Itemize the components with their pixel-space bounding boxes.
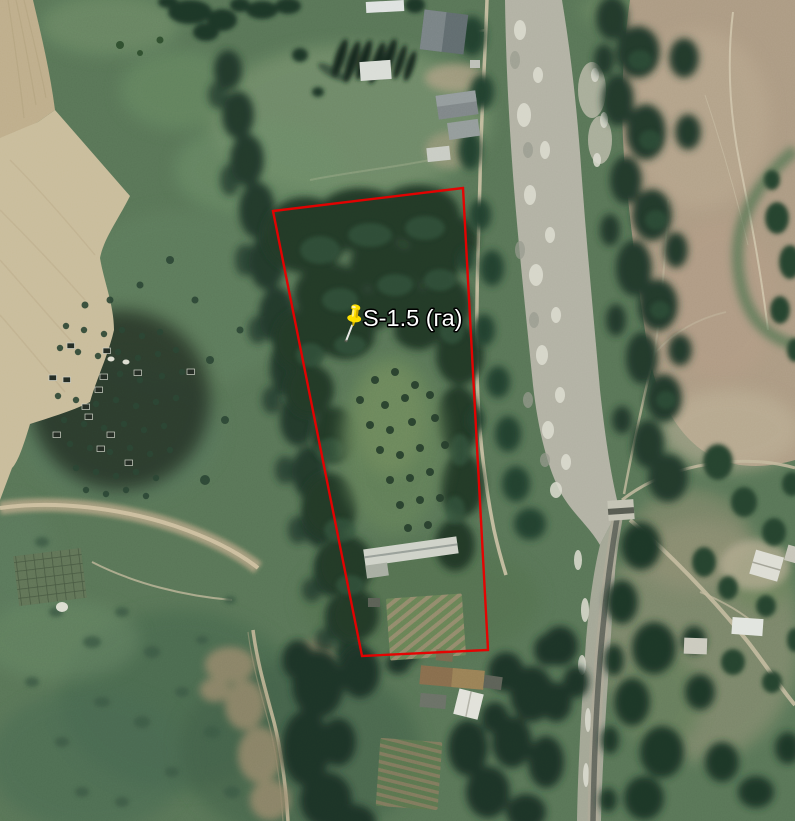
map-viewport[interactable]: S-1.5 (га) — [0, 0, 795, 821]
placemark-label: S-1.5 (га) — [363, 305, 462, 331]
satellite-imagery: S-1.5 (га) — [0, 0, 795, 821]
color-grade-overlay — [0, 0, 795, 821]
